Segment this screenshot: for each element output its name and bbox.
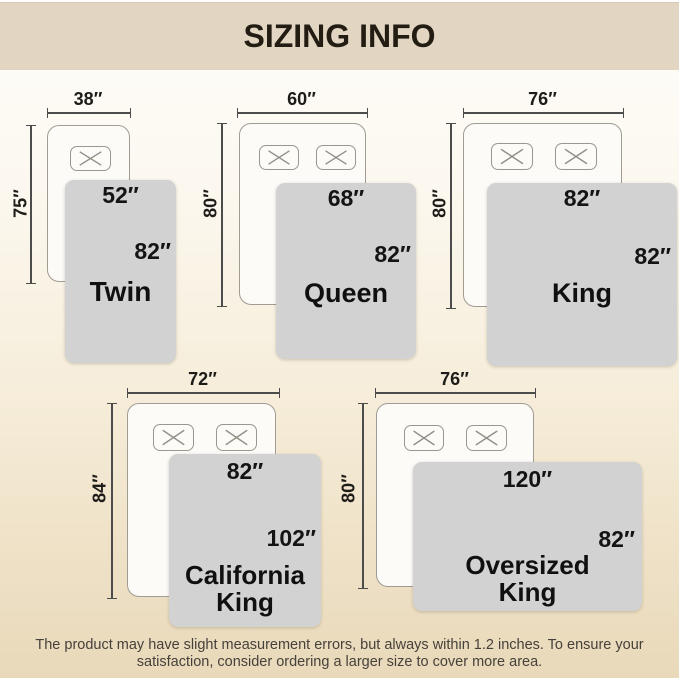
pillow — [216, 424, 257, 451]
sizing-info-page: SIZING INFO 38″ 75″ 52″ 82″ Twin 60″ 80″ — [0, 0, 679, 678]
pillow-x-icon — [260, 146, 298, 169]
bed-width-label: 60″ — [237, 89, 366, 110]
bed-length-label: 80″ — [339, 469, 360, 509]
pillow — [70, 146, 111, 171]
blanket-width-label: 52″ — [65, 182, 176, 209]
bed-length-arrow — [26, 125, 36, 284]
pillow-x-icon — [492, 144, 532, 169]
size-name-label: Queen — [276, 279, 416, 307]
bed-width-label: 38″ — [27, 89, 149, 110]
page-title: SIZING INFO — [0, 3, 679, 70]
size-name-label: Oversized King — [443, 552, 612, 606]
pillow-x-icon — [317, 146, 355, 169]
pillow-x-icon — [556, 144, 596, 169]
blanket-width-label: 82″ — [169, 458, 321, 485]
disclaimer-note: The product may have slight measurement … — [10, 637, 669, 671]
pillow-x-icon — [217, 425, 256, 450]
blanket-length-label: 82″ — [374, 241, 411, 268]
pillow-x-icon — [71, 147, 110, 170]
pillow — [153, 424, 194, 451]
size-name-label: King — [487, 279, 677, 307]
bed-width-label: 76″ — [375, 369, 534, 390]
bed-length-arrow — [358, 403, 368, 589]
bed-width-arrow — [237, 108, 368, 118]
pillow — [555, 143, 597, 170]
bed-width-label: 76″ — [463, 89, 622, 110]
blanket-length-label: 82″ — [598, 526, 635, 553]
blanket: 52″ 82″ Twin — [65, 180, 176, 363]
size-name-label: Twin — [65, 277, 176, 306]
bed-length-arrow — [107, 403, 117, 599]
footer-line-1: The product may have slight measurement … — [10, 637, 669, 654]
bed-length-arrow — [446, 123, 456, 309]
pillow — [259, 145, 299, 170]
blanket: 82″ 102″ California King — [169, 454, 321, 627]
blanket-width-label: 68″ — [276, 185, 416, 212]
pillow-x-icon — [405, 426, 443, 450]
blanket: 120″ 82″ Oversized King — [413, 462, 642, 611]
pillow — [466, 425, 507, 451]
blanket-length-label: 102″ — [267, 525, 316, 552]
bed-length-arrow — [217, 123, 227, 307]
blanket-width-label: 82″ — [487, 185, 677, 212]
pillow — [404, 425, 444, 451]
blanket-width-label: 120″ — [413, 466, 642, 493]
bed-width-arrow — [127, 388, 280, 398]
pillow-x-icon — [154, 425, 193, 450]
blanket-length-label: 82″ — [134, 238, 171, 265]
bed-width-arrow — [47, 108, 131, 118]
bed-width-arrow — [463, 108, 624, 118]
blanket: 82″ 82″ King — [487, 183, 677, 366]
blanket-length-label: 82″ — [634, 243, 671, 270]
bed-width-label: 72″ — [127, 369, 278, 390]
pillow — [491, 143, 533, 170]
blanket: 68″ 82″ Queen — [276, 183, 416, 359]
header-banner: SIZING INFO — [0, 2, 679, 70]
pillow — [316, 145, 356, 170]
size-name-label: California King — [169, 562, 321, 616]
bed-width-arrow — [375, 388, 536, 398]
pillow-x-icon — [467, 426, 506, 450]
footer-line-2: satisfaction, consider ordering a larger… — [10, 654, 669, 671]
